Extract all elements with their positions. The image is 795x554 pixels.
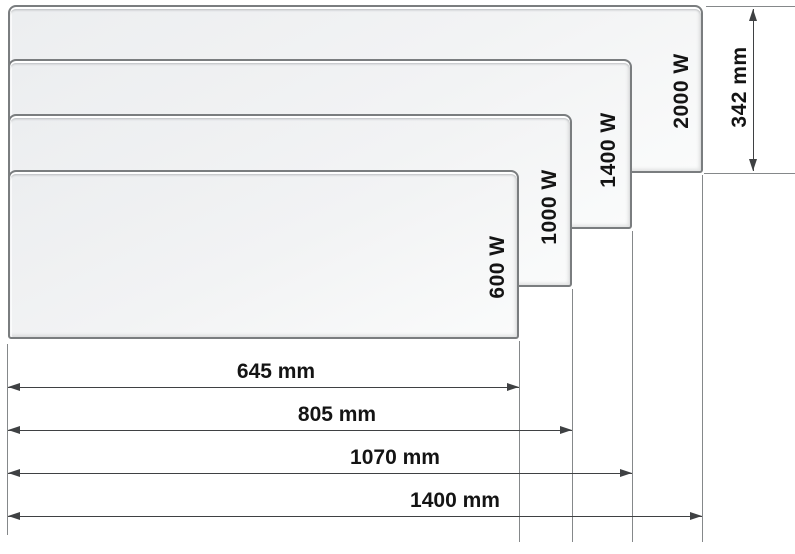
arrow-right-icon <box>620 469 632 477</box>
arrow-left-icon <box>8 469 20 477</box>
dimension-width-1400w: 1070 mm <box>8 473 632 474</box>
arrow-right-icon <box>560 426 572 434</box>
extension-line-top-right <box>706 6 795 7</box>
extension-line-600w <box>519 341 520 542</box>
panel-600w <box>8 170 519 339</box>
power-label-1400w: 1400 W <box>597 112 621 187</box>
dimension-height <box>753 9 754 171</box>
arrow-down-icon <box>749 159 757 171</box>
extension-line-1400w <box>632 231 633 542</box>
extension-line-bottom-right <box>704 173 795 174</box>
width-dimension-label: 645 mm <box>237 360 315 384</box>
dimension-width-2000w: 1400 mm <box>8 516 702 517</box>
arrow-left-icon <box>8 383 20 391</box>
width-dimension-label: 805 mm <box>298 403 376 427</box>
extension-line-1000w <box>572 289 573 542</box>
power-label-600w: 600 W <box>486 235 510 298</box>
arrow-right-icon <box>507 383 519 391</box>
extension-line-left <box>7 344 8 535</box>
arrow-right-icon <box>690 512 702 520</box>
width-dimension-label: 1400 mm <box>410 489 500 513</box>
arrow-up-icon <box>749 9 757 21</box>
power-label-1000w: 1000 W <box>538 169 562 244</box>
arrow-left-icon <box>8 426 20 434</box>
heater-size-diagram: 600 W 1000 W 1400 W 2000 W 342 mm 645 mm… <box>0 0 795 554</box>
arrow-left-icon <box>8 512 20 520</box>
extension-line-2000w <box>702 175 703 542</box>
height-dimension-label: 342 mm <box>728 46 752 127</box>
power-label-2000w: 2000 W <box>670 53 694 128</box>
dimension-width-600w: 645 mm <box>8 387 519 388</box>
width-dimension-label: 1070 mm <box>350 446 440 470</box>
dimension-width-1000w: 805 mm <box>8 430 572 431</box>
